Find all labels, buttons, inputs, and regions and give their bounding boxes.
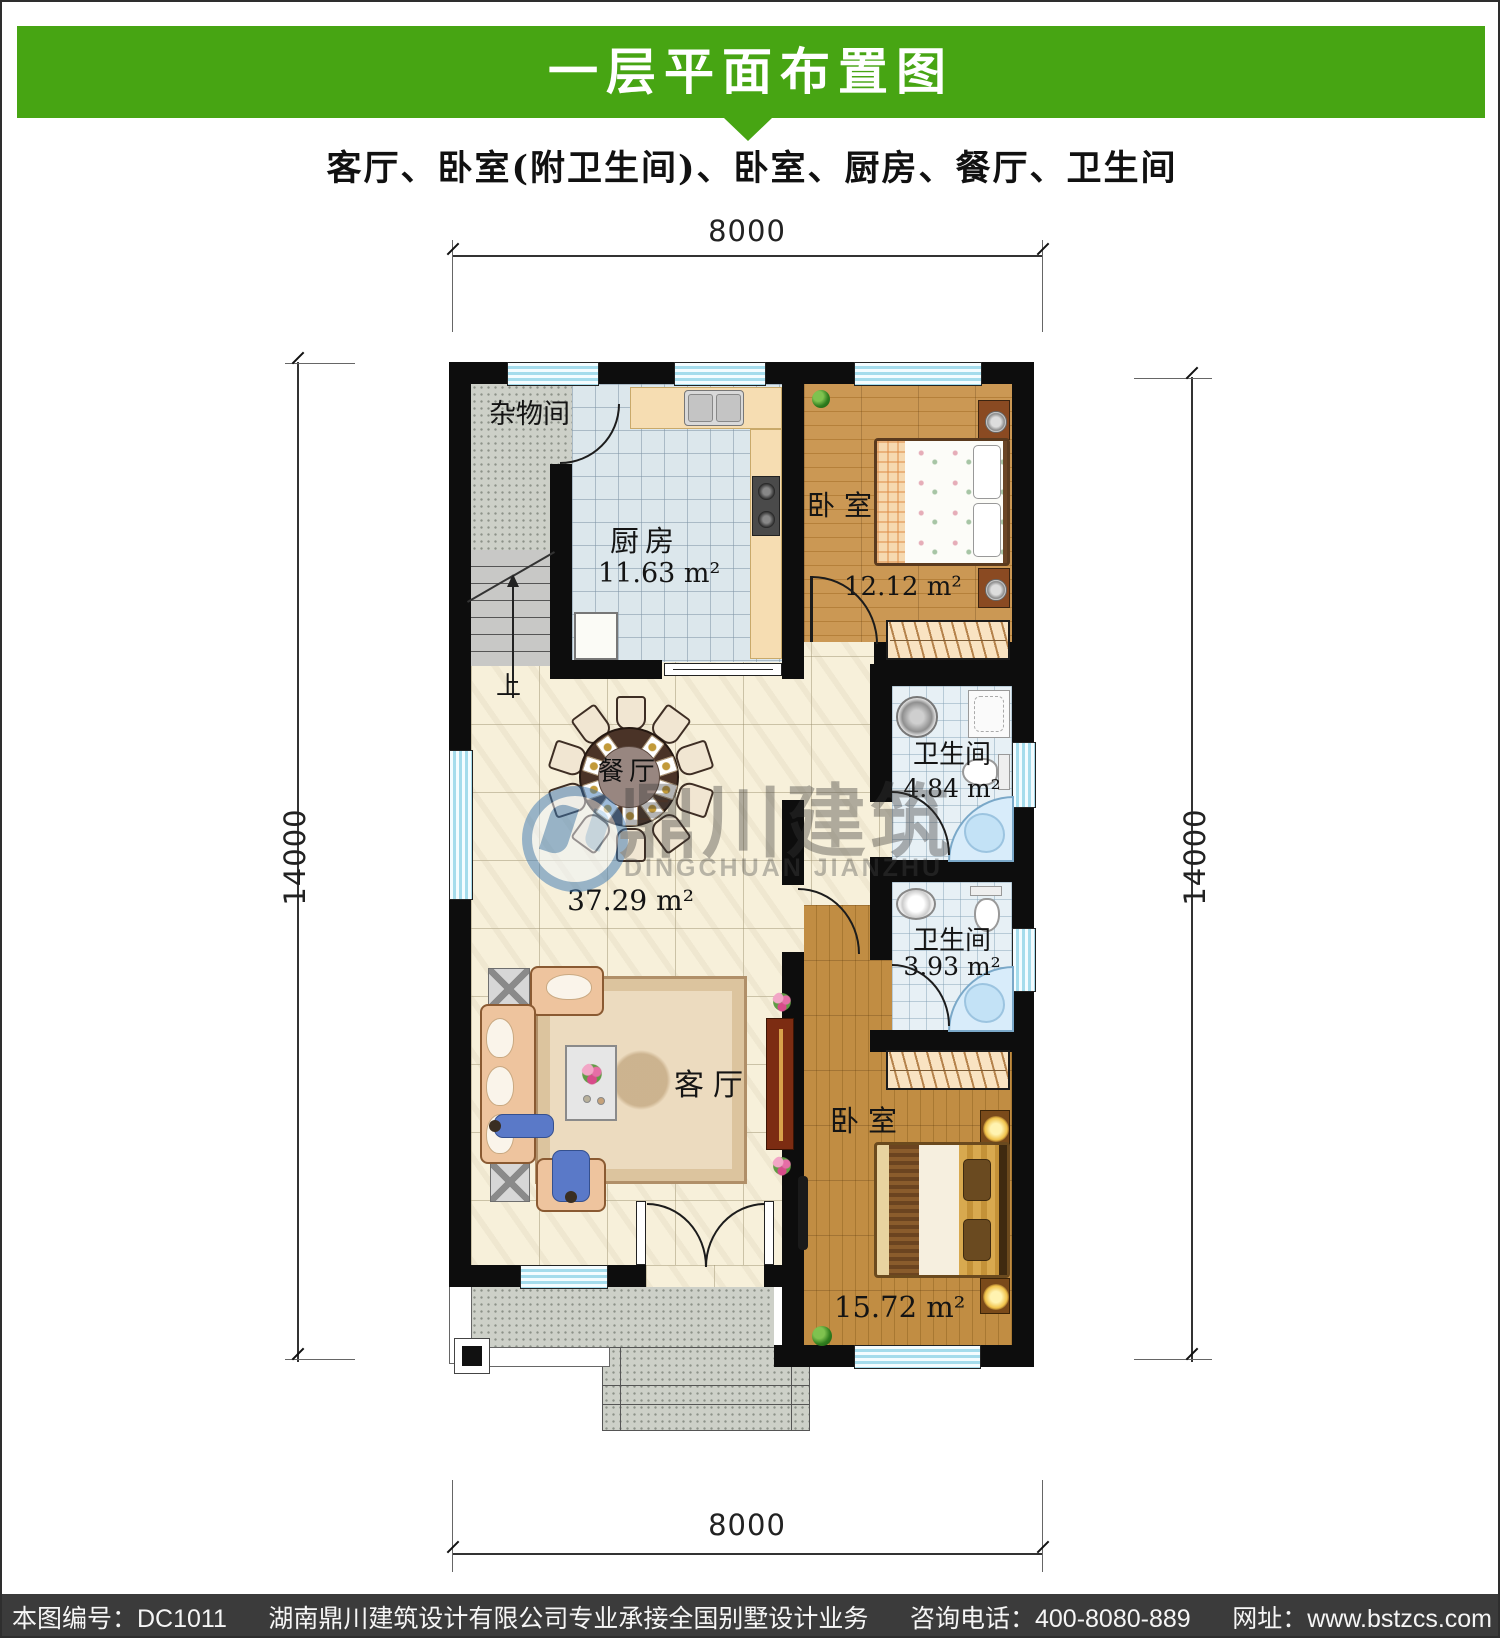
pillow (973, 445, 1001, 499)
flower-icon (772, 992, 792, 1012)
tv-cabinet (766, 1018, 794, 1150)
nightstand (980, 1278, 1010, 1314)
up-arrow-icon (507, 574, 519, 587)
shower-tray (974, 696, 1004, 732)
dining-table-group: 餐厅 (529, 677, 729, 877)
pillow (973, 503, 1001, 557)
nightstand (978, 400, 1010, 440)
bowl (583, 1095, 591, 1103)
dim-tick (1037, 243, 1050, 256)
bed (874, 438, 1010, 566)
dim-tick (1037, 1541, 1050, 1554)
stairs (471, 550, 550, 666)
kitchen-counter (750, 429, 782, 659)
dim-ext (452, 1480, 453, 1572)
tv (798, 1176, 808, 1250)
plant-icon (812, 390, 830, 408)
door-leaf (810, 576, 813, 642)
bedroom-top-label: 卧室 (807, 484, 881, 524)
sink-icon (896, 888, 936, 920)
sliding-door-track (673, 669, 773, 670)
dim-line-top (452, 255, 1042, 257)
kitchen-area: 11.63 m² (598, 558, 720, 589)
dim-ext (452, 240, 453, 332)
dim-tick (447, 243, 460, 256)
coffee-table (565, 1045, 617, 1121)
wall (870, 1030, 1012, 1052)
plant-icon (812, 1326, 832, 1346)
wall (782, 660, 804, 679)
porch-step-line (602, 1385, 810, 1386)
kitchen-label: 厨房 (610, 518, 680, 560)
dim-ext (1134, 378, 1212, 379)
bedroom-bottom-label: 卧室 (830, 1098, 906, 1140)
storage-label: 杂物间 (489, 392, 570, 431)
footer-bar: 本图编号：DC1011 湖南鼎川建筑设计有限公司专业承接全国别墅设计业务 咨询电… (2, 1594, 1500, 1638)
armchair (530, 966, 604, 1016)
banner-pointer-triangle (724, 118, 772, 141)
sofa (480, 1004, 536, 1164)
window (449, 750, 473, 900)
wardrobe (886, 1050, 1010, 1090)
window (1012, 928, 1036, 992)
dining-area: 37.29 m² (558, 884, 703, 917)
wall (782, 800, 804, 885)
pillow (963, 1159, 991, 1201)
door-leaf (764, 1201, 774, 1265)
window (854, 1345, 981, 1369)
tv-cabinet-inlay (779, 1029, 783, 1141)
window (854, 362, 982, 386)
company-name: 湖南鼎川建筑设计有限公司专业承接全国别墅设计业务 (268, 1599, 868, 1635)
bath-top-label: 卫生间 (892, 734, 1012, 771)
bed (874, 1142, 1010, 1278)
page-title: 一层平面布置图 (17, 26, 1485, 118)
living-label: 客厅 (674, 1060, 752, 1104)
dim-line-bottom (452, 1553, 1042, 1555)
porch-slab (457, 1287, 774, 1347)
porch-wall-outline (488, 1347, 610, 1367)
bedroom-bottom-area: 15.72 m² (834, 1290, 965, 1324)
lamp-icon (985, 411, 1007, 433)
washing-machine-icon (896, 696, 938, 738)
person-figure (494, 1114, 554, 1138)
wall (870, 860, 1012, 882)
dim-ext (1042, 1480, 1043, 1572)
porch-step-line (602, 1404, 810, 1405)
dim-ext (1042, 240, 1043, 332)
porch-step-rail (620, 1347, 621, 1431)
pillow (963, 1219, 991, 1261)
window (507, 362, 599, 386)
lamp-icon (983, 1116, 1009, 1142)
flower-icon (581, 1063, 603, 1085)
door-leaf (636, 1201, 646, 1265)
dim-ext (1134, 1359, 1212, 1360)
bed-throw (877, 441, 905, 563)
toilet-tank (970, 886, 1002, 896)
wardrobe (886, 620, 1010, 660)
title-banner: 一层平面布置图 (17, 26, 1485, 118)
dim-top-value: 8000 (697, 214, 797, 248)
chair (616, 828, 646, 862)
bed-runner (889, 1145, 919, 1275)
stairs-up-label: 上 (496, 666, 521, 702)
bed-sheet (919, 1145, 959, 1275)
cushion (486, 1018, 514, 1058)
fridge (574, 612, 618, 660)
burner (758, 511, 775, 528)
floor-plan-poster: 一层平面布置图 客厅、卧室(附卫生间)、卧室、厨房、餐厅、卫生间 8000 80… (0, 0, 1500, 1638)
wall (1012, 384, 1034, 1345)
sink-icon (684, 390, 744, 426)
column-core (462, 1346, 482, 1366)
headboard (999, 1145, 1007, 1275)
drawing-number: 本图编号：DC1011 (12, 1599, 227, 1635)
phone-number: 咨询电话：400-8080-889 (910, 1599, 1191, 1635)
window (1012, 742, 1036, 808)
wall (870, 686, 892, 802)
dim-left-value: 14000 (278, 792, 312, 922)
chair (616, 696, 646, 730)
sliding-door (664, 663, 782, 676)
lamp-icon (985, 579, 1007, 601)
porch-column (454, 1338, 490, 1374)
wall (870, 664, 1012, 686)
dim-ext (285, 363, 355, 364)
bowl (597, 1097, 605, 1105)
sink-basin (716, 394, 741, 422)
cushion (486, 1066, 514, 1106)
lamp-icon (983, 1284, 1009, 1310)
dining-label: 餐厅 (529, 751, 729, 788)
bedroom-top-area: 12.12 m² (844, 572, 962, 602)
room-list-subtitle: 客厅、卧室(附卫生间)、卧室、厨房、餐厅、卫生间 (2, 140, 1500, 191)
headboard (1003, 441, 1007, 563)
sink-basin (688, 394, 713, 422)
shower-icon (968, 690, 1010, 738)
nightstand (978, 568, 1010, 608)
stove-icon (752, 476, 780, 536)
dim-ext (285, 1359, 355, 1360)
nightstand (980, 1110, 1010, 1146)
side-table (490, 1162, 530, 1202)
person-figure (552, 1150, 590, 1202)
window (674, 362, 766, 386)
burner (758, 483, 775, 500)
wall (782, 384, 804, 660)
window (520, 1265, 608, 1289)
flower-icon (772, 1156, 792, 1176)
dim-bottom-value: 8000 (697, 1508, 797, 1542)
cushion (546, 974, 592, 1000)
website: 网址：www.bstzcs.com (1232, 1599, 1492, 1635)
door-threshold (646, 1265, 764, 1287)
dim-tick (447, 1541, 460, 1554)
wall (550, 464, 572, 662)
dim-right-value: 14000 (1178, 792, 1212, 922)
